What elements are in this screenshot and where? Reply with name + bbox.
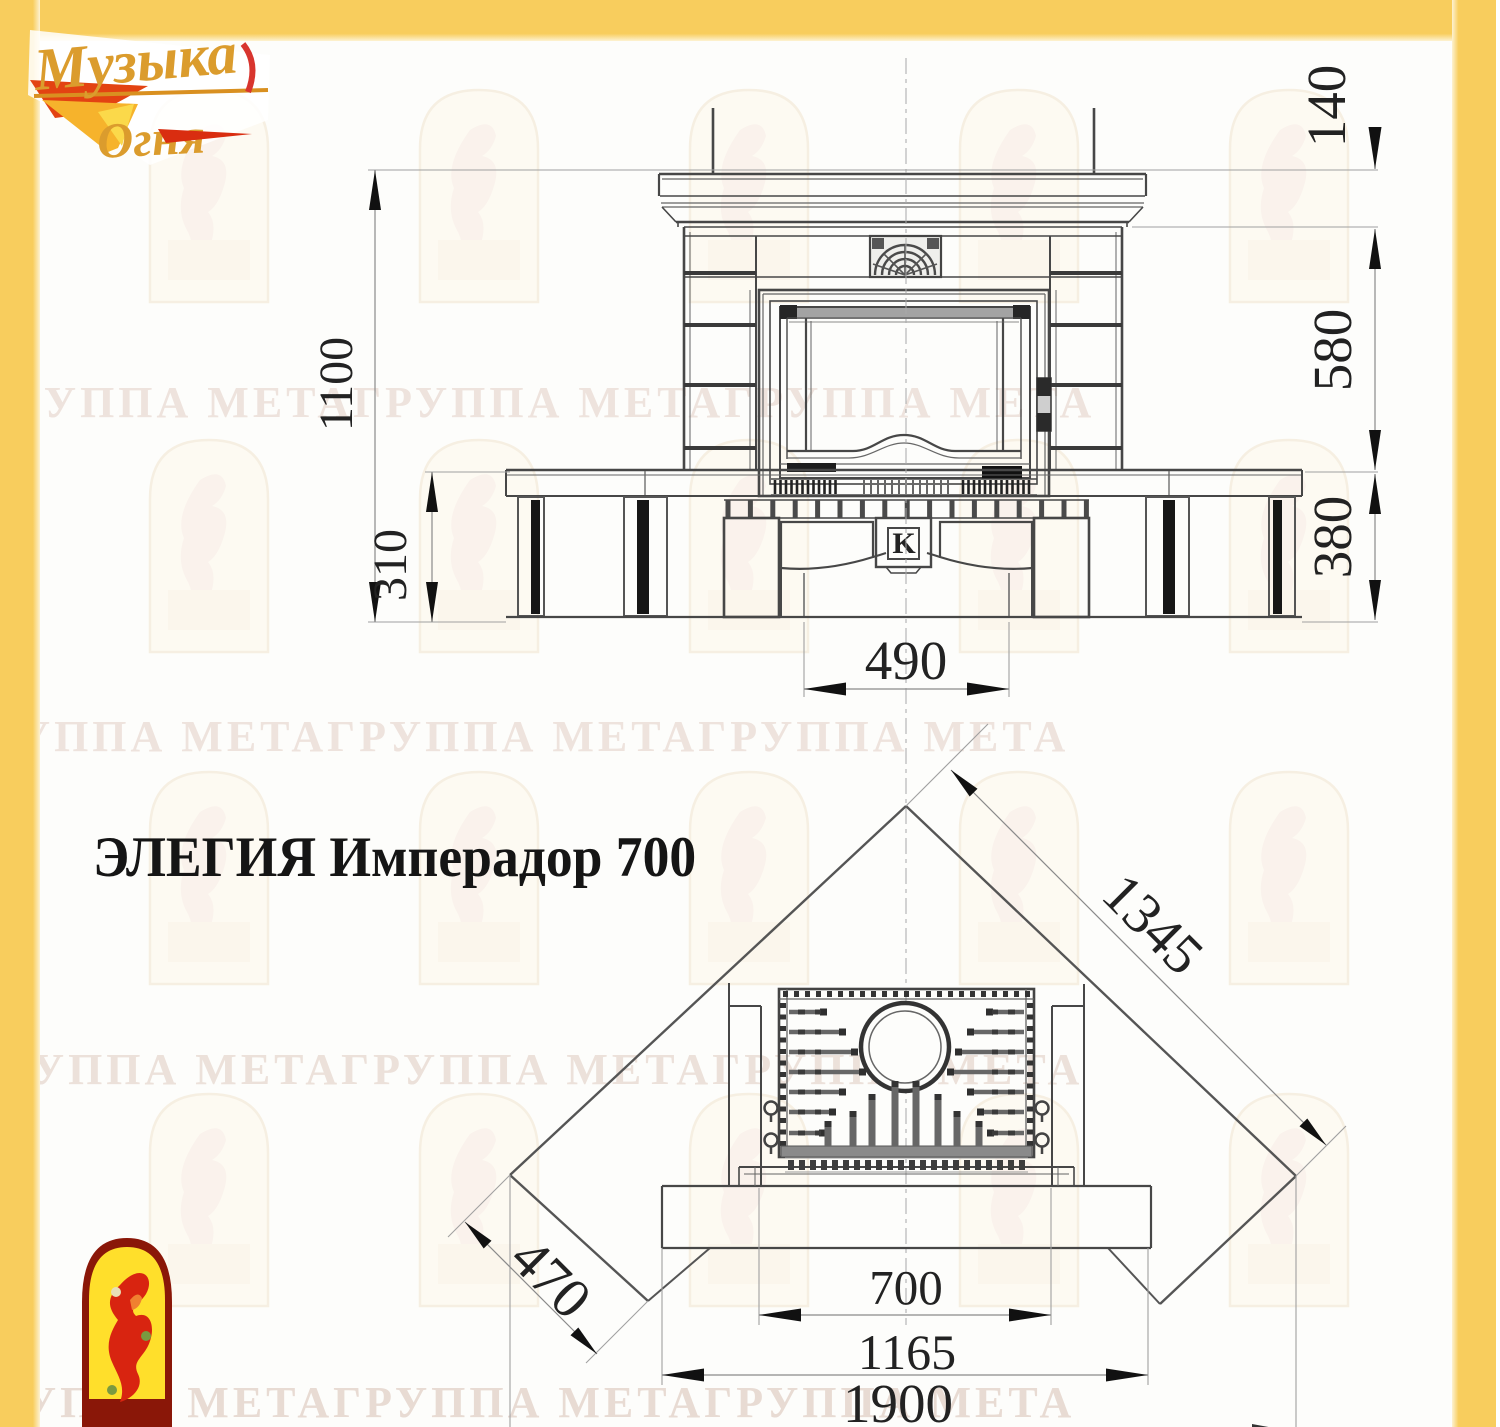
- svg-text:K: K: [892, 527, 916, 560]
- svg-text:310: 310: [364, 529, 417, 601]
- svg-text:1900: 1900: [843, 1373, 953, 1427]
- svg-text:380: 380: [1302, 496, 1363, 579]
- svg-text:1165: 1165: [858, 1324, 956, 1380]
- svg-text:700: 700: [869, 1260, 943, 1315]
- svg-text:ЭЛЕГИЯ Имперадор 700: ЭЛЕГИЯ Имперадор 700: [93, 826, 696, 889]
- svg-text:1100: 1100: [310, 337, 363, 431]
- svg-text:140: 140: [1296, 65, 1357, 148]
- svg-text:ГРУППА МЕТАГРУППА МЕТАГРУППА М: ГРУППА МЕТАГРУППА МЕТАГРУППА МЕТА: [0, 712, 1069, 761]
- svg-text:490: 490: [865, 630, 948, 691]
- svg-text:580: 580: [1302, 309, 1363, 392]
- svg-text:ГРУППА МЕТАГРУППА МЕТАГРУППА М: ГРУППА МЕТАГРУППА МЕТАГРУППА МЕТА: [0, 378, 1095, 427]
